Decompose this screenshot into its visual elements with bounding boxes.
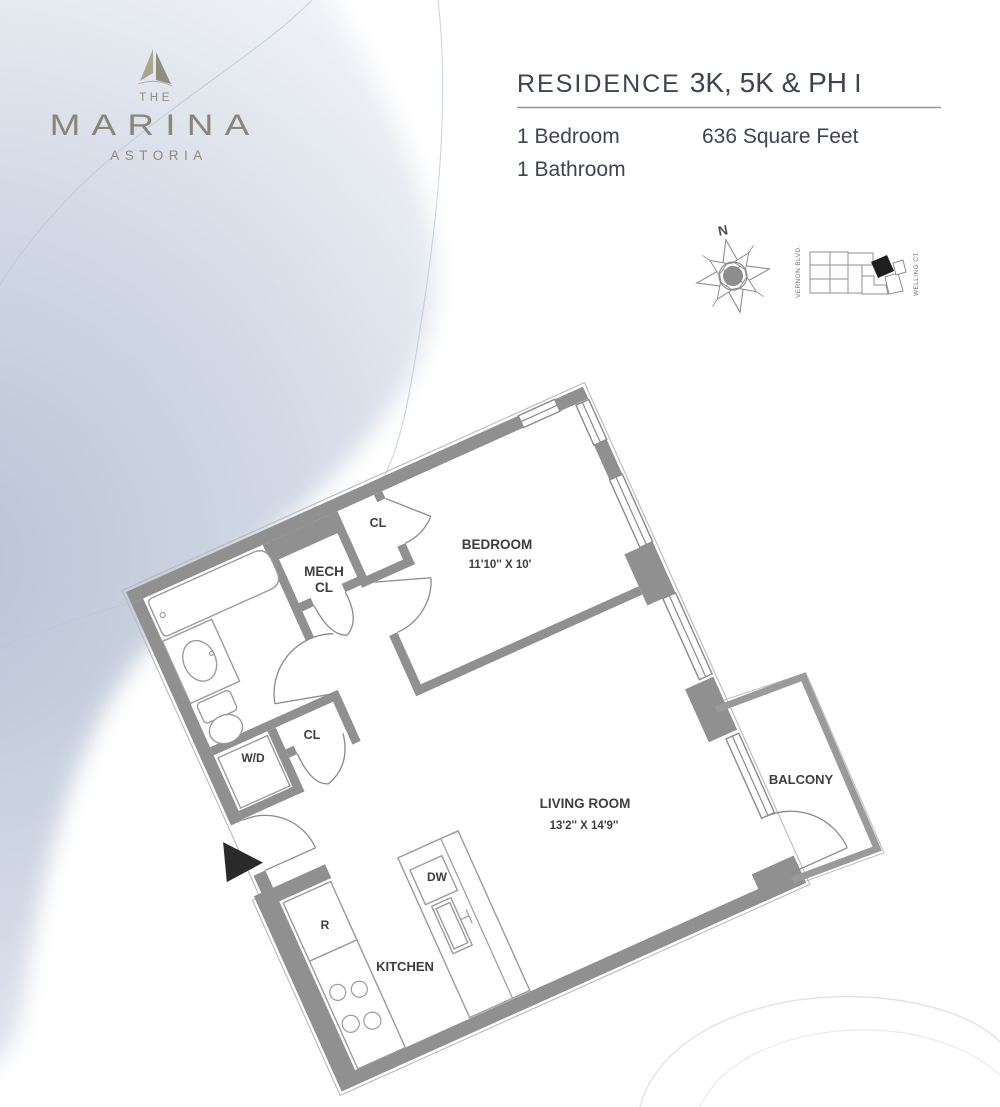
svg-text:BALCONY: BALCONY — [769, 772, 834, 787]
svg-text:LIVING ROOM: LIVING ROOM — [540, 796, 631, 811]
svg-text:R: R — [321, 918, 330, 932]
svg-text:MECH: MECH — [304, 564, 344, 579]
svg-text:WELLING CT.: WELLING CT. — [913, 251, 920, 296]
svg-text:KITCHEN: KITCHEN — [376, 959, 434, 974]
svg-text:ASTORIA: ASTORIA — [110, 148, 208, 163]
svg-text:CL: CL — [370, 516, 387, 530]
svg-text:W/D: W/D — [241, 751, 265, 765]
svg-text:1 Bedroom: 1 Bedroom — [517, 125, 620, 148]
svg-text:CL: CL — [304, 728, 321, 742]
svg-text:BEDROOM: BEDROOM — [462, 537, 533, 552]
svg-text:N: N — [717, 222, 729, 239]
svg-text:MARINA: MARINA — [50, 109, 261, 142]
svg-text:RESIDENCE 3K, 5K & PH I: RESIDENCE 3K, 5K & PH I — [517, 67, 861, 98]
svg-text:13'2'' X 14'9'': 13'2'' X 14'9'' — [550, 820, 619, 832]
svg-text:THE: THE — [139, 92, 173, 104]
svg-text:DW: DW — [427, 870, 448, 884]
svg-text:11'10'' X 10': 11'10'' X 10' — [469, 559, 532, 571]
svg-text:636 Square Feet: 636 Square Feet — [702, 125, 859, 148]
svg-text:CL: CL — [315, 580, 333, 595]
svg-text:1 Bathroom: 1 Bathroom — [517, 158, 626, 181]
svg-text:VERNON BLVD.: VERNON BLVD. — [795, 245, 802, 298]
